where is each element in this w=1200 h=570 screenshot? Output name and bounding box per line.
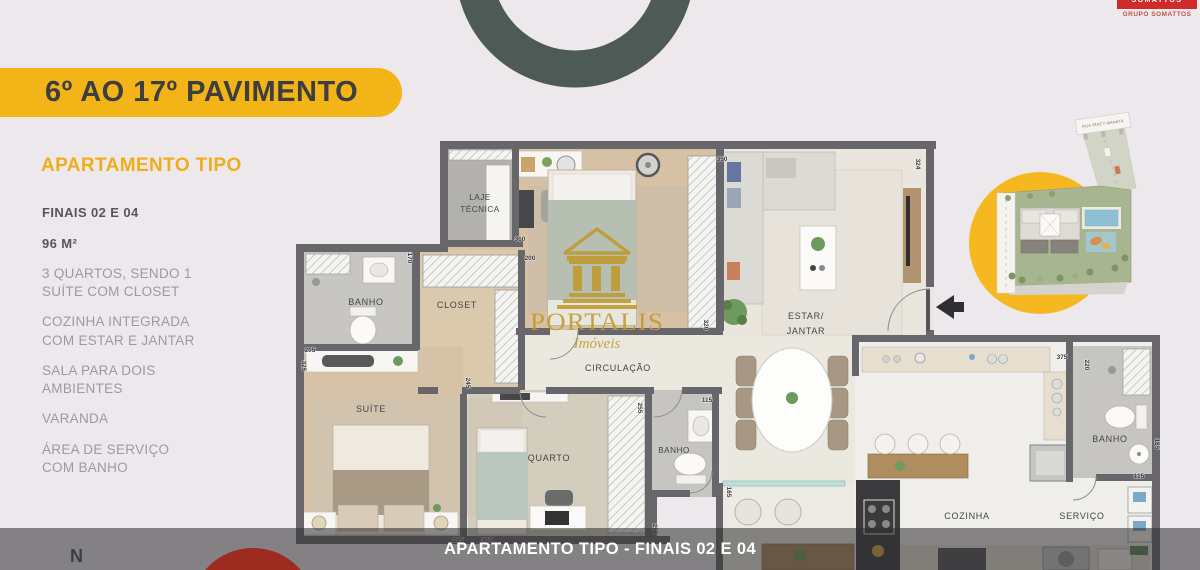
label-banho-suite: BANHO: [348, 297, 384, 307]
dining-set: [736, 348, 848, 452]
label-estar-line1: ESTAR/: [788, 311, 824, 321]
dim-170: 170: [406, 253, 413, 264]
bottom-caption-text: APARTAMENTO TIPO - FINAIS 02 E 04: [444, 540, 756, 559]
minimap-unit-highlight: [1051, 240, 1078, 253]
label-laje-line1: LAJE: [469, 193, 491, 202]
minimap-unit-highlight: [1021, 240, 1048, 253]
somattos-logo: SOMATTOS: [1117, 0, 1197, 9]
dim-324: 324: [914, 159, 921, 170]
label-suite: SUÍTE: [356, 404, 386, 414]
dim-245: 245: [464, 378, 471, 389]
label-circulacao: CIRCULAÇÃO: [585, 363, 651, 373]
dim-220: 220: [1083, 360, 1090, 371]
dim-115-servico: 115: [1134, 473, 1145, 480]
dim-360: 360: [515, 236, 526, 243]
label-cozinha: COZINHA: [944, 511, 989, 521]
location-minimap: RUA IRACY MANATA: [969, 112, 1136, 314]
minimap-pool: [1085, 210, 1118, 226]
label-quarto: QUARTO: [528, 453, 570, 463]
label-closet: CLOSET: [437, 300, 477, 310]
floor-plan: LAJE TÉCNICA BANHO CLOSET SUÍTE QUARTO C…: [0, 0, 1200, 570]
watermark-name: PORTALIS: [530, 309, 664, 336]
dim-200: 200: [525, 255, 536, 262]
dim-205: 205: [305, 347, 316, 354]
brand-ring-icon: [474, 0, 676, 69]
dim-350: 350: [717, 156, 728, 163]
dim-115-banho: 115: [702, 397, 713, 404]
label-estar-line2: JANTAR: [787, 326, 826, 336]
dim-320: 320: [702, 320, 709, 331]
somattos-logo-text: SOMATTOS: [1117, 0, 1197, 4]
bottom-caption-bar: APARTAMENTO TIPO - FINAIS 02 E 04: [0, 528, 1200, 570]
suite-vanity: [306, 350, 418, 372]
dim-165-servico: 165: [1153, 439, 1160, 450]
grupo-somattos-label: GRUPO SOMATTOS: [1117, 11, 1197, 18]
entrance-arrow-icon: [936, 295, 964, 319]
label-banho-quarto: BANHO: [658, 446, 690, 455]
label-servico: SERVIÇO: [1059, 511, 1104, 521]
label-banho-servico: BANHO: [1092, 434, 1128, 444]
minimap-road-diagonal: [1083, 126, 1136, 192]
label-laje-line2: TÉCNICA: [460, 204, 499, 214]
watermark-tagline: Imóveis: [573, 336, 621, 352]
dim-165-banho: 165: [725, 487, 732, 498]
dim-255: 255: [636, 403, 643, 414]
compass-north-label: N: [70, 546, 83, 567]
dim-325: 325: [300, 361, 307, 372]
dim-375: 375: [1057, 354, 1068, 361]
page: LAJE TÉCNICA BANHO CLOSET SUÍTE QUARTO C…: [0, 0, 1200, 570]
